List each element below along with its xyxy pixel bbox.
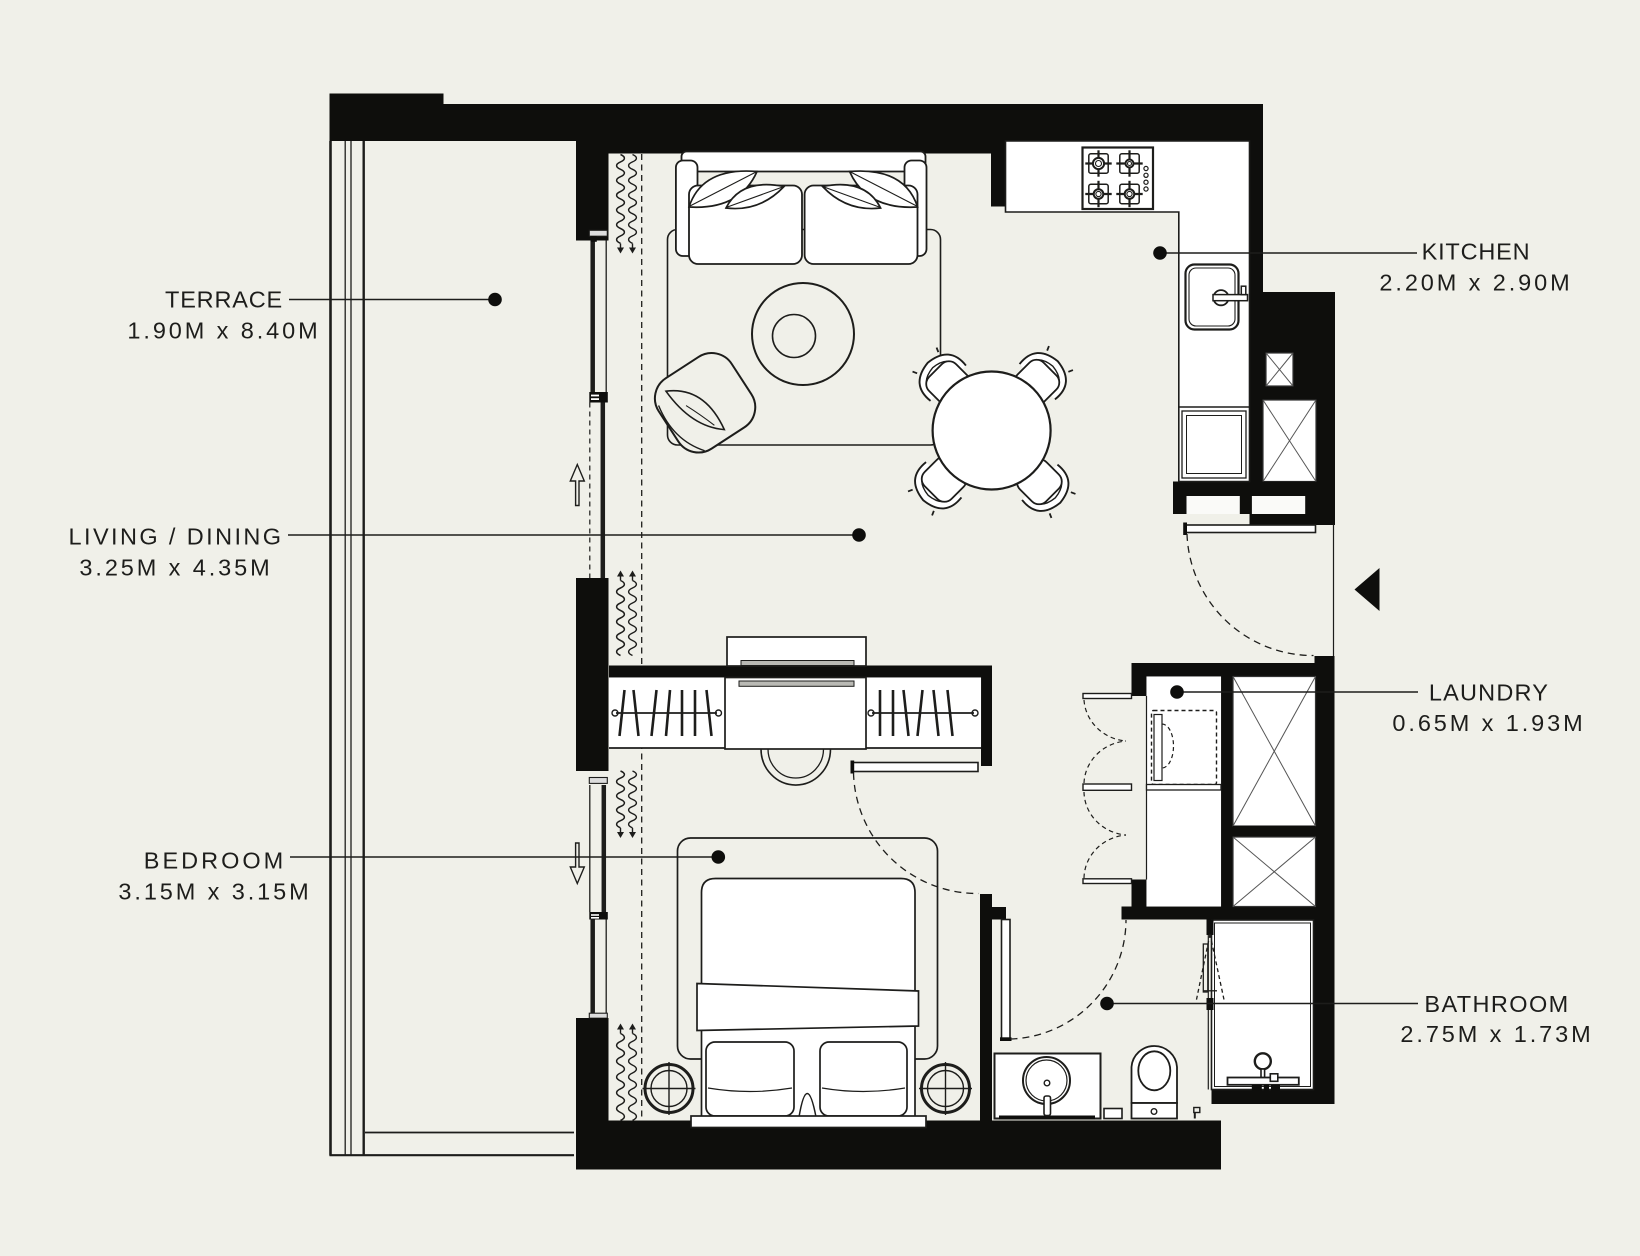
- svg-text:LIVING / DINING: LIVING / DINING: [69, 524, 284, 550]
- svg-text:LAUNDRY: LAUNDRY: [1429, 680, 1549, 706]
- svg-text:1.90M x 8.40M: 1.90M x 8.40M: [127, 317, 320, 343]
- svg-text:2.20M x 2.90M: 2.20M x 2.90M: [1379, 269, 1572, 295]
- svg-text:KITCHEN: KITCHEN: [1422, 239, 1531, 265]
- svg-text:3.25M x 4.35M: 3.25M x 4.35M: [79, 554, 272, 580]
- svg-text:2.75M x 1.73M: 2.75M x 1.73M: [1400, 1021, 1593, 1047]
- svg-text:BEDROOM: BEDROOM: [144, 848, 286, 874]
- svg-text:BATHROOM: BATHROOM: [1424, 991, 1569, 1017]
- svg-text:3.15M x 3.15M: 3.15M x 3.15M: [118, 878, 311, 904]
- svg-text:0.65M x 1.93M: 0.65M x 1.93M: [1392, 710, 1585, 736]
- svg-text:TERRACE: TERRACE: [165, 287, 283, 313]
